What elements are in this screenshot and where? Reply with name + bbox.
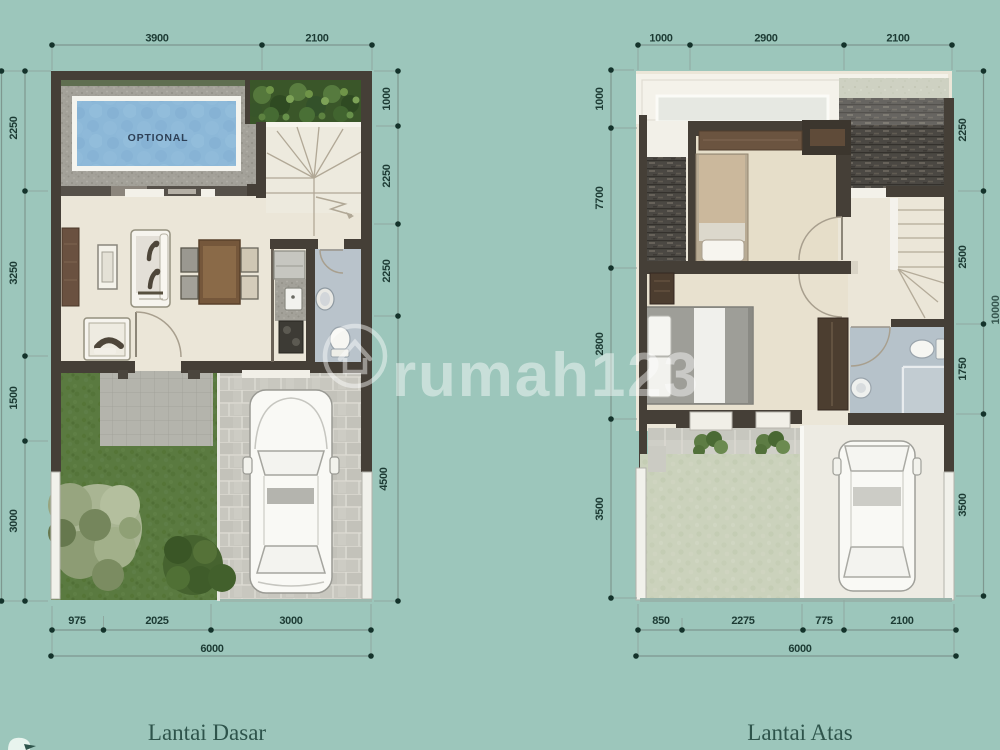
svg-text:2100: 2100 bbox=[305, 33, 328, 45]
svg-text:2900: 2900 bbox=[754, 33, 777, 45]
svg-text:2275: 2275 bbox=[731, 615, 754, 627]
svg-text:2250: 2250 bbox=[381, 259, 393, 282]
svg-text:850: 850 bbox=[652, 615, 670, 627]
svg-text:3250: 3250 bbox=[8, 261, 20, 284]
svg-text:1500: 1500 bbox=[8, 386, 20, 409]
svg-text:7700: 7700 bbox=[594, 186, 606, 209]
svg-text:3000: 3000 bbox=[279, 615, 302, 627]
svg-text:6000: 6000 bbox=[200, 643, 223, 655]
svg-text:OPTIONAL: OPTIONAL bbox=[128, 132, 189, 144]
svg-text:1000: 1000 bbox=[649, 33, 672, 45]
svg-text:2250: 2250 bbox=[957, 118, 969, 141]
svg-text:1000: 1000 bbox=[381, 87, 393, 110]
svg-text:rumah123: rumah123 bbox=[392, 341, 698, 410]
svg-text:6000: 6000 bbox=[788, 643, 811, 655]
svg-text:975: 975 bbox=[68, 615, 86, 627]
svg-text:3900: 3900 bbox=[145, 33, 168, 45]
svg-text:3000: 3000 bbox=[8, 509, 20, 532]
svg-text:1000: 1000 bbox=[594, 87, 606, 110]
svg-text:3500: 3500 bbox=[594, 497, 606, 520]
svg-text:2100: 2100 bbox=[886, 33, 909, 45]
svg-text:2025: 2025 bbox=[145, 615, 168, 627]
svg-text:4500: 4500 bbox=[378, 467, 390, 490]
svg-text:10000: 10000 bbox=[990, 295, 1000, 324]
svg-text:775: 775 bbox=[815, 615, 833, 627]
svg-text:3500: 3500 bbox=[957, 493, 969, 516]
svg-text:2250: 2250 bbox=[381, 164, 393, 187]
svg-text:2500: 2500 bbox=[957, 245, 969, 268]
svg-text:2100: 2100 bbox=[890, 615, 913, 627]
svg-text:2250: 2250 bbox=[8, 116, 20, 139]
svg-text:1750: 1750 bbox=[957, 357, 969, 380]
svg-text:Lantai Dasar: Lantai Dasar bbox=[148, 720, 266, 745]
svg-text:Lantai Atas: Lantai Atas bbox=[747, 720, 852, 745]
